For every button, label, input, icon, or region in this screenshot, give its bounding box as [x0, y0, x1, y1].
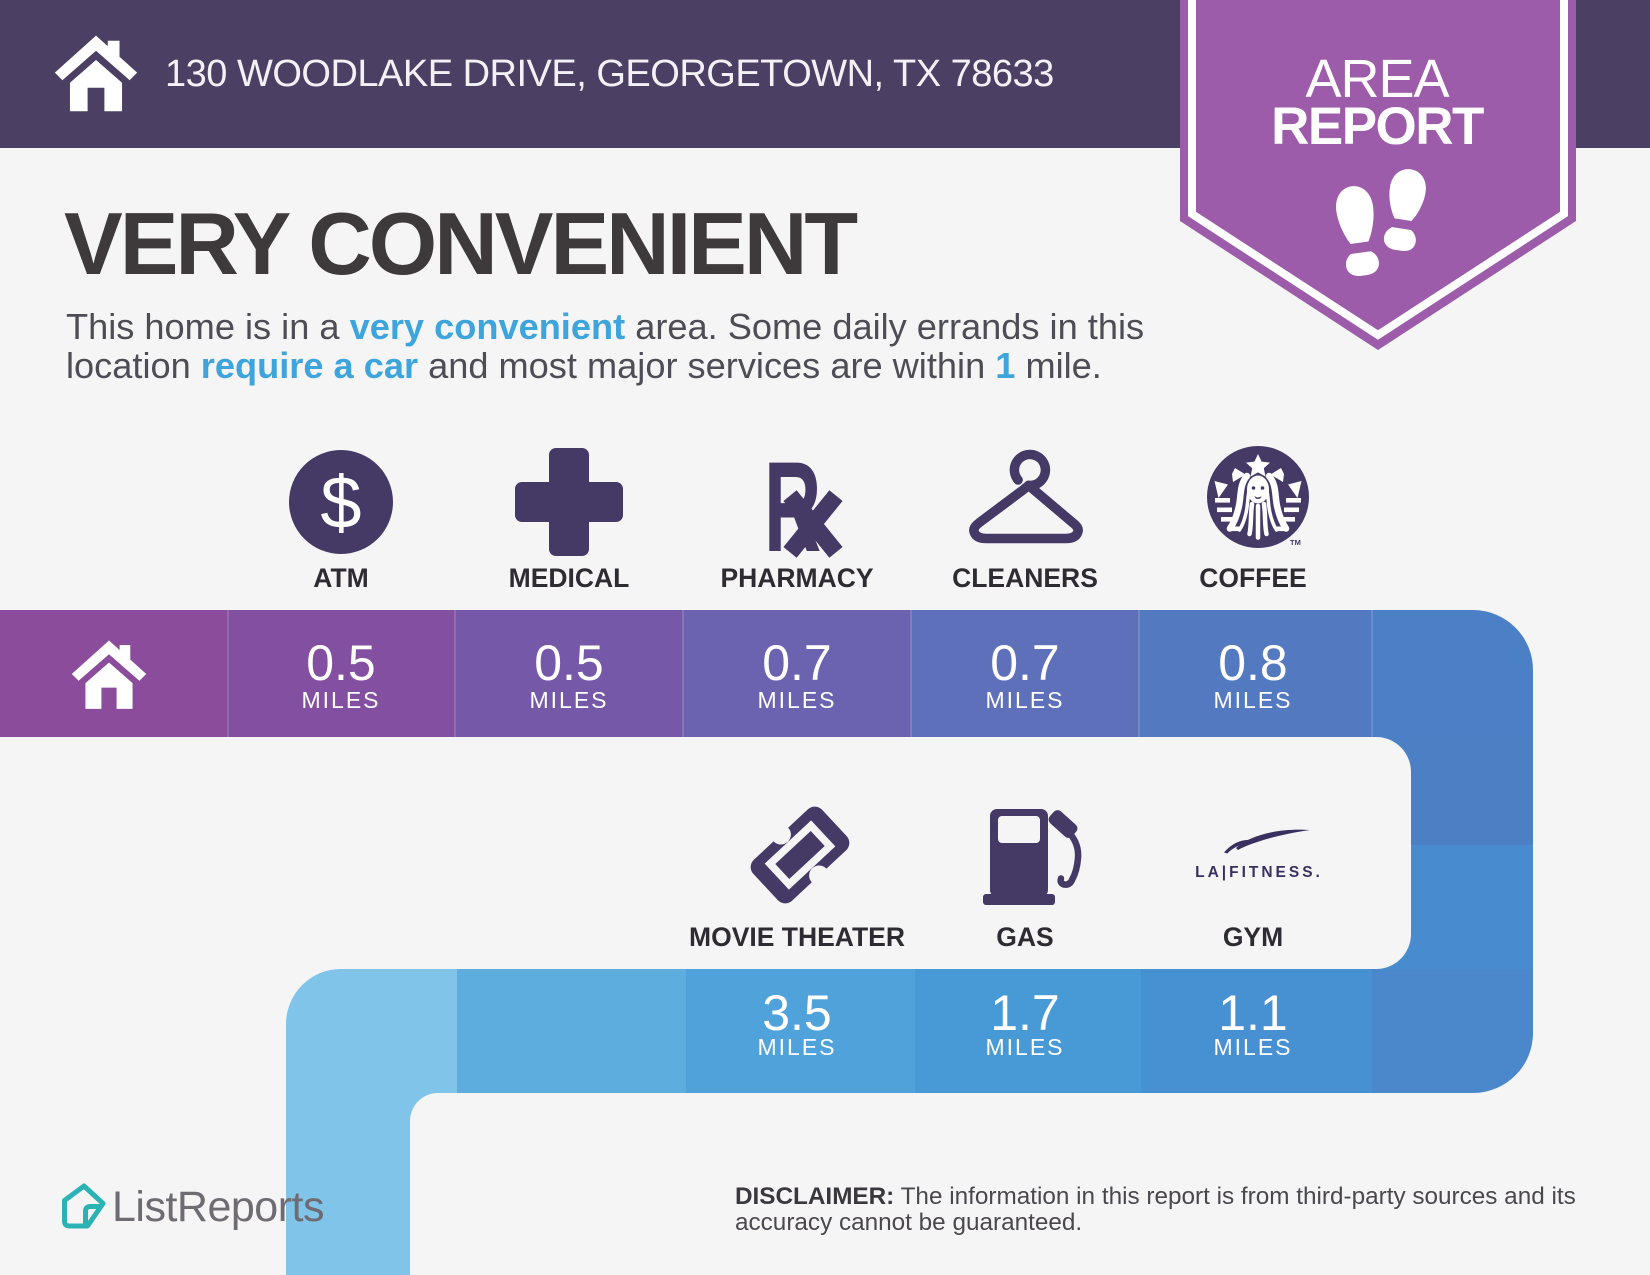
svg-text:LA|FITNESS.: LA|FITNESS. [1195, 864, 1323, 881]
svg-text:$: $ [320, 461, 361, 544]
svg-text:TM: TM [1290, 538, 1301, 547]
svg-text:REPORT: REPORT [1271, 97, 1484, 156]
